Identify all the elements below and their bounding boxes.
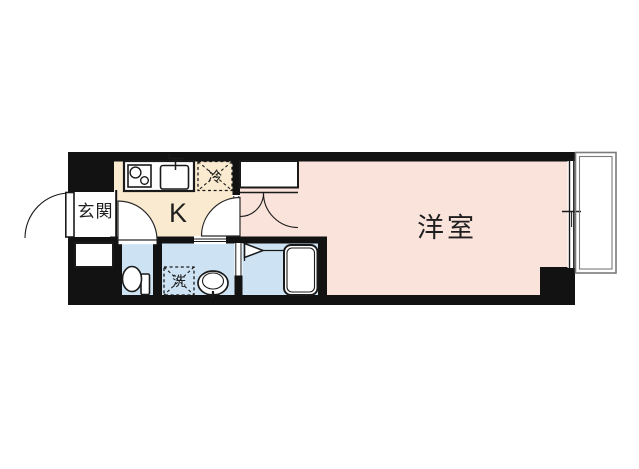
floorplan-page: 冷 洗 bbox=[0, 0, 639, 469]
wall-toilet-washroom bbox=[153, 243, 162, 295]
washroom-door-opening bbox=[194, 236, 226, 244]
bathtub-icon bbox=[284, 245, 318, 295]
western-room-label: 洋室 bbox=[417, 213, 477, 243]
refrigerator-label: 冷 bbox=[208, 169, 223, 186]
pillar-bottom-right bbox=[540, 267, 575, 305]
wall-kitchen-closet bbox=[233, 152, 241, 195]
wall-bottom bbox=[68, 295, 575, 305]
entrance-step-line bbox=[115, 190, 117, 237]
washing-machine-label: 洗 bbox=[172, 274, 186, 289]
entrance-door-leaf bbox=[66, 193, 74, 238]
floorplan-drawing: 冷 洗 bbox=[0, 0, 639, 469]
stove-icon bbox=[128, 165, 151, 187]
wall-bath-left-lower bbox=[235, 276, 243, 297]
wall-bath-right bbox=[318, 237, 327, 304]
kitchen-label: K bbox=[169, 198, 187, 228]
shoe-cabinet-icon bbox=[75, 243, 113, 267]
wall-entrance-block bbox=[68, 152, 114, 192]
entrance-label: 玄関 bbox=[78, 202, 114, 221]
closet-box bbox=[240, 161, 298, 188]
